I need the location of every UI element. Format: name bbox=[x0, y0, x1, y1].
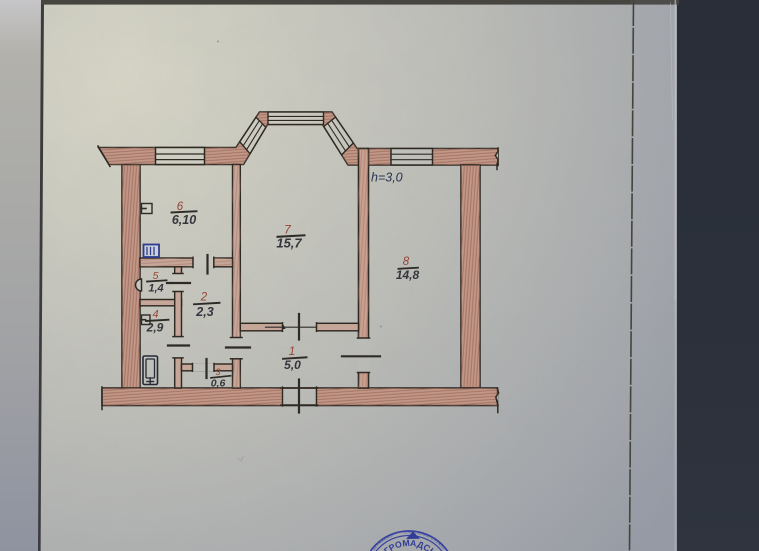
svg-text:1: 1 bbox=[289, 346, 295, 358]
svg-text:3: 3 bbox=[215, 367, 220, 377]
svg-text:1,4: 1,4 bbox=[148, 283, 163, 295]
svg-text:8: 8 bbox=[403, 256, 410, 268]
svg-text:5,0: 5,0 bbox=[284, 358, 301, 372]
svg-text:6,10: 6,10 bbox=[172, 213, 196, 227]
svg-text:h=3,0: h=3,0 bbox=[371, 171, 403, 185]
svg-text:15,7: 15,7 bbox=[276, 236, 302, 251]
svg-text:4: 4 bbox=[152, 309, 158, 321]
svg-text:2,3: 2,3 bbox=[195, 305, 213, 319]
svg-text:14,8: 14,8 bbox=[396, 268, 420, 282]
svg-text:0,6: 0,6 bbox=[211, 378, 226, 390]
svg-text:2,9: 2,9 bbox=[146, 321, 164, 335]
svg-text:2: 2 bbox=[200, 292, 208, 304]
